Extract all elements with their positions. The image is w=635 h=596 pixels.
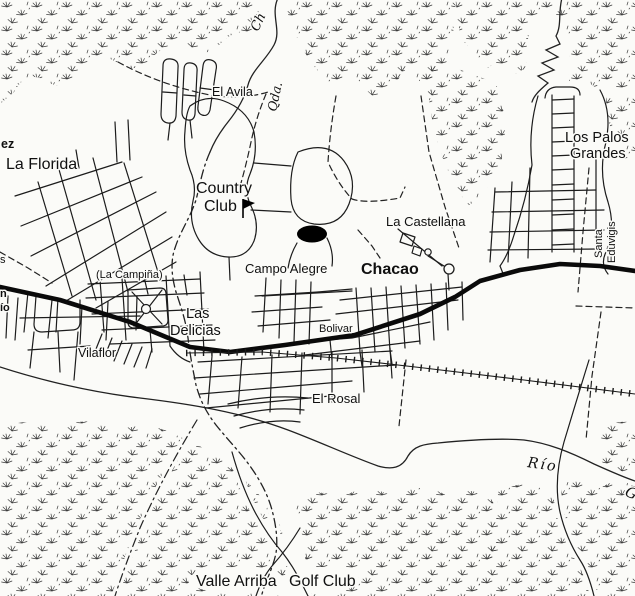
label-la-florida: La Florida (6, 156, 77, 173)
label-vilaflor: Vilaflor (78, 346, 116, 360)
label-las: Las (186, 306, 209, 322)
label-la-campina: (La Campiña) (96, 269, 163, 281)
label-chacao: Chacao (361, 261, 419, 278)
map-canvas: ez La Florida El Avila Country Club Ch Q… (0, 0, 635, 596)
label-fragment-ez: ez (1, 137, 14, 151)
label-el-rosal: El Rosal (312, 391, 361, 406)
label-golf-club: Golf Club (289, 573, 356, 590)
label-eduvigis: Eduvigis (606, 221, 618, 263)
label-club: Club (204, 198, 237, 215)
label-grandes: Grandes (570, 146, 626, 162)
label-country: Country (196, 180, 252, 197)
label-valle-arriba: Valle Arriba (196, 573, 277, 590)
chacao-plaza-circle (444, 264, 454, 274)
roundabout-circle (142, 305, 151, 314)
street-map-scan: ez La Florida El Avila Country Club Ch Q… (0, 0, 635, 596)
label-la-castellana: La Castellana (386, 214, 466, 229)
label-el-avila: El Avila (212, 85, 253, 99)
label-fragment-s: s (0, 254, 6, 266)
label-campo-alegre: Campo Alegre (245, 261, 327, 276)
label-los-palos: Los Palos (565, 130, 629, 146)
label-santa: Santa (593, 228, 605, 258)
castellana-plaza-circle (425, 249, 431, 255)
label-delicias: Delicias (170, 323, 221, 339)
label-fragment-n: n (0, 288, 7, 300)
label-bolivar: Bolivar (319, 323, 353, 335)
label-fragment-io: ío (0, 302, 10, 314)
